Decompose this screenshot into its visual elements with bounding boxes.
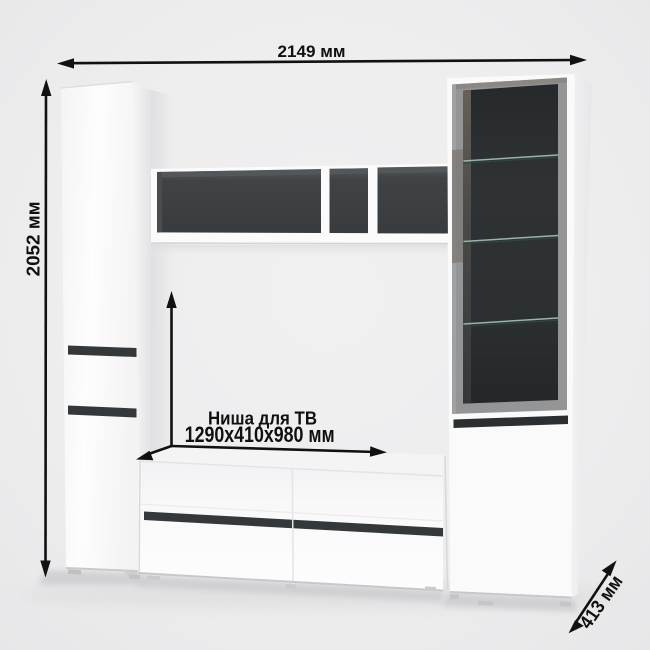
svg-text:2052 мм: 2052 мм <box>24 201 44 276</box>
svg-text:1290x410x980 мм: 1290x410x980 мм <box>185 422 335 447</box>
svg-text:2149 мм: 2149 мм <box>278 42 346 61</box>
